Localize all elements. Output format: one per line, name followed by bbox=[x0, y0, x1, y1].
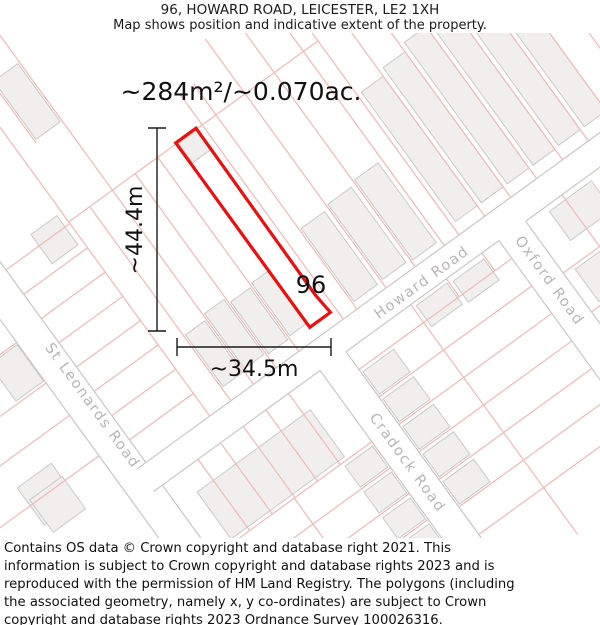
width-dimension-label: ~34.5m bbox=[210, 357, 299, 382]
height-dimension-line bbox=[148, 128, 166, 331]
header: 96, HOWARD ROAD, LEICESTER, LE2 1XH Map … bbox=[0, 0, 600, 33]
page-subtitle: Map shows position and indicative extent… bbox=[0, 18, 600, 33]
land-registry-plan: 96, HOWARD ROAD, LEICESTER, LE2 1XH Map … bbox=[0, 0, 600, 625]
height-dimension-label: ~44.4m bbox=[123, 186, 148, 275]
copyright-notice: Contains OS data © Crown copyright and d… bbox=[4, 540, 516, 625]
area-label: ~284m²/~0.070ac. bbox=[121, 77, 362, 106]
street-label-oxford: Oxford Road bbox=[511, 233, 586, 328]
plot-number-label: 96 bbox=[296, 271, 327, 299]
page-title: 96, HOWARD ROAD, LEICESTER, LE2 1XH bbox=[0, 2, 600, 18]
street-label-st-leonards: St Leonards Road bbox=[41, 340, 142, 471]
map-canvas: St Leonards Road Howard Road Oxford Road… bbox=[0, 33, 600, 538]
plot-outbuilding bbox=[179, 130, 211, 162]
road-oxford bbox=[495, 216, 600, 510]
